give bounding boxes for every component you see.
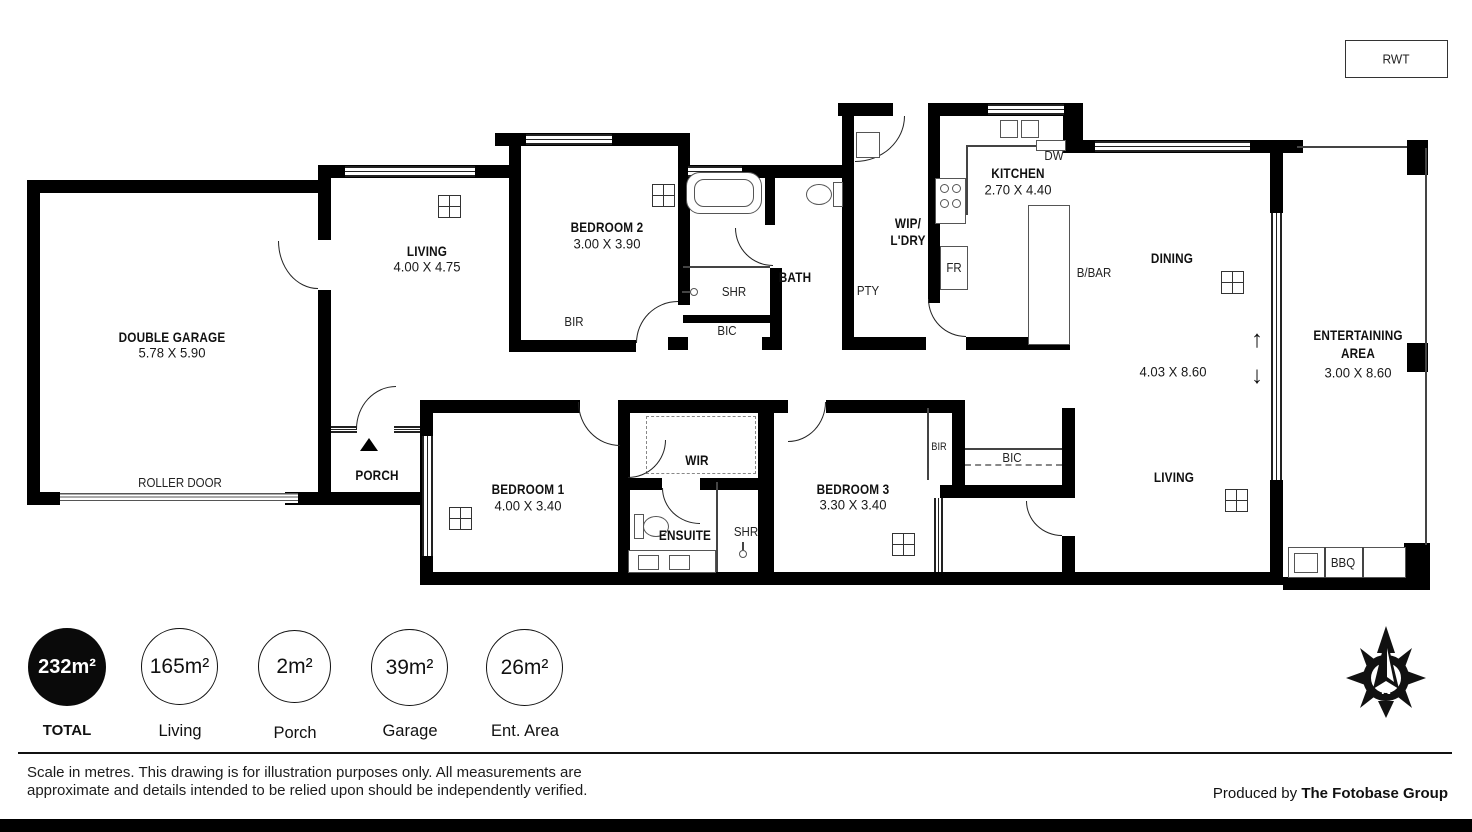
area-label-total: TOTAL xyxy=(43,722,92,739)
sink-icon xyxy=(1021,120,1039,138)
wall xyxy=(618,478,662,490)
burner-icon xyxy=(952,184,961,193)
window xyxy=(1095,141,1250,152)
room-label-bedroom1: BEDROOM 1 xyxy=(485,481,572,497)
sliding-door-glazing xyxy=(1271,213,1282,480)
area-label-garage: Garage xyxy=(382,722,437,741)
shower-head-icon xyxy=(690,288,698,296)
slider-arrow-up: ↑ xyxy=(1251,326,1263,354)
window xyxy=(526,134,612,145)
wall xyxy=(774,400,788,413)
door-arc xyxy=(278,241,318,289)
room-label-wip-1: WIP/ xyxy=(892,215,923,231)
svg-text:N: N xyxy=(1381,681,1391,697)
pergola-line xyxy=(1425,148,1427,545)
room-label-bedroom3: BEDROOM 3 xyxy=(810,481,897,497)
bbq-label: BBQ xyxy=(1330,556,1356,570)
wall xyxy=(630,400,770,413)
roller-door-label: ROLLER DOOR xyxy=(135,476,226,490)
burner-icon xyxy=(940,199,949,208)
bathtub-inner-icon xyxy=(694,179,754,207)
area-label-ent-area: Ent. Area xyxy=(491,722,559,741)
room-label-garage: DOUBLE GARAGE xyxy=(108,329,235,345)
pty-label: PTY xyxy=(856,284,880,298)
room-label-bedroom2: BEDROOM 2 xyxy=(564,219,651,235)
burner-icon xyxy=(940,184,949,193)
window xyxy=(345,166,475,177)
bbq-bench-divider xyxy=(1362,547,1364,578)
disclaimer-line-2: approximate and details intended to be r… xyxy=(27,782,587,799)
fr-label: FR xyxy=(946,261,963,275)
area-circle-porch: 2m² xyxy=(258,630,331,703)
bir-label: BIR xyxy=(930,441,948,453)
room-label-kitchen: KITCHEN xyxy=(986,165,1050,181)
area-circle-living: 165m² xyxy=(141,628,218,705)
window-pane-icon xyxy=(1225,489,1248,512)
window-pane-icon xyxy=(449,507,472,530)
room-label-bath: BATH xyxy=(776,269,815,285)
shower-head-icon xyxy=(739,550,747,558)
wall xyxy=(678,133,690,305)
wall xyxy=(27,180,318,193)
room-label-wip-2: L'DRY xyxy=(887,232,929,248)
wall xyxy=(318,290,331,505)
area-circle-total: 232m² xyxy=(28,628,106,706)
area-circle-ent-area: 26m² xyxy=(486,629,563,706)
wall xyxy=(420,400,580,413)
rwt-label: RWT xyxy=(1381,52,1410,67)
door-arc xyxy=(928,299,966,337)
room-dims-bedroom2: 3.00 X 3.90 xyxy=(572,237,641,252)
toilet-tank-icon xyxy=(634,514,644,539)
wall xyxy=(826,400,965,413)
wall xyxy=(842,337,926,350)
wall xyxy=(420,572,1283,585)
room-label-living-top: LIVING xyxy=(403,243,451,259)
closet-line xyxy=(927,408,929,480)
room-label-dining: DINING xyxy=(1147,250,1197,266)
room-label-living-bottom: LIVING xyxy=(1150,469,1198,485)
wall xyxy=(1270,140,1283,213)
room-label-entertaining: ENTERTAINING AREA xyxy=(1297,327,1419,363)
wall xyxy=(683,315,770,323)
vanity-basin-icon xyxy=(669,555,690,570)
breakfast-bar-island xyxy=(1028,205,1070,345)
window-pane-icon xyxy=(1221,271,1244,294)
shr-label: SHR xyxy=(721,285,747,299)
wall xyxy=(758,400,774,572)
wall xyxy=(765,165,775,225)
toilet-tank-icon xyxy=(833,182,843,207)
window xyxy=(331,426,357,433)
shower-screen-line xyxy=(683,266,770,268)
door-arc xyxy=(1026,501,1062,536)
window-pane-icon xyxy=(892,533,915,556)
room-dims-bedroom1: 4.00 X 3.40 xyxy=(493,499,562,514)
wall xyxy=(318,424,331,436)
disclaimer-line-1: Scale in metres. This drawing is for ill… xyxy=(27,764,582,781)
area-circle-garage: 39m² xyxy=(371,629,448,706)
wall xyxy=(330,492,422,505)
bic-label: BIC xyxy=(1002,451,1023,465)
bbq-bench-divider xyxy=(1324,547,1326,578)
shower-head-stem xyxy=(682,291,690,293)
room-dims-dining: 4.03 X 8.60 xyxy=(1138,365,1207,380)
room-dims-kitchen: 2.70 X 4.40 xyxy=(983,183,1052,198)
bbq-sink-icon xyxy=(1294,553,1318,573)
door-arc xyxy=(636,301,678,343)
room-label-ensuite: ENSUITE xyxy=(654,527,716,543)
wall xyxy=(838,103,893,116)
shr-label: SHR xyxy=(733,525,759,539)
vanity-basin-icon xyxy=(638,555,659,570)
door-arc xyxy=(578,402,620,446)
window xyxy=(934,498,943,572)
shower-screen-line xyxy=(716,482,718,572)
burner-icon xyxy=(952,199,961,208)
wall xyxy=(842,103,854,350)
window xyxy=(422,436,433,556)
window xyxy=(394,426,420,433)
wall xyxy=(952,400,965,498)
wall xyxy=(1270,480,1283,578)
room-dims-living-top: 4.00 X 4.75 xyxy=(392,260,461,275)
window-pane-icon xyxy=(652,184,675,207)
window xyxy=(988,104,1064,115)
wall xyxy=(27,492,60,505)
bic-label: BIC xyxy=(717,324,738,338)
wall xyxy=(509,133,521,352)
room-dims-bedroom3: 3.30 X 3.40 xyxy=(818,498,887,513)
wall xyxy=(762,337,778,350)
room-dims-entertaining: 3.00 X 8.60 xyxy=(1323,366,1392,381)
door-arc xyxy=(662,488,700,524)
area-label-porch: Porch xyxy=(273,724,316,743)
floor-plan: RWT DOUBLE GARAGE 5.78 X 5.90 ROLLER DOO… xyxy=(0,0,1472,832)
room-dims-garage: 5.78 X 5.90 xyxy=(137,346,206,361)
compass-rose: N xyxy=(1344,626,1428,720)
room-label-porch: PORCH xyxy=(351,467,403,483)
slider-arrow-down: ↓ xyxy=(1251,362,1263,390)
bottom-bar xyxy=(0,819,1472,832)
bbar-label: B/BAR xyxy=(1075,266,1113,280)
sink-icon xyxy=(1000,120,1018,138)
roller-door-lines xyxy=(60,493,298,503)
credit-brand: The Fotobase Group xyxy=(1301,785,1448,802)
credit-prefix: Produced by xyxy=(1213,785,1297,802)
counter-line xyxy=(966,147,968,215)
door-arc xyxy=(356,386,396,429)
wall xyxy=(1062,408,1075,498)
room-label-wir: WIR xyxy=(683,452,711,468)
wall xyxy=(27,180,40,505)
wall xyxy=(940,485,1075,498)
window-pane-icon xyxy=(438,195,461,218)
entry-marker-icon xyxy=(360,438,378,451)
wall xyxy=(518,340,636,352)
dw-label: DW xyxy=(1044,149,1065,163)
wall xyxy=(1404,543,1430,590)
footer-rule xyxy=(18,752,1452,754)
door-arc xyxy=(735,228,773,266)
shower-head-stem xyxy=(742,542,744,550)
toilet-icon xyxy=(806,184,832,205)
bir-label: BIR xyxy=(564,315,585,329)
producer-credit: Produced by The Fotobase Group xyxy=(1213,785,1448,802)
pergola-line xyxy=(1297,146,1407,148)
area-label-living: Living xyxy=(158,722,201,741)
laundry-trough-icon xyxy=(856,132,880,158)
closet-line xyxy=(965,448,1062,450)
door-arc xyxy=(788,402,826,442)
